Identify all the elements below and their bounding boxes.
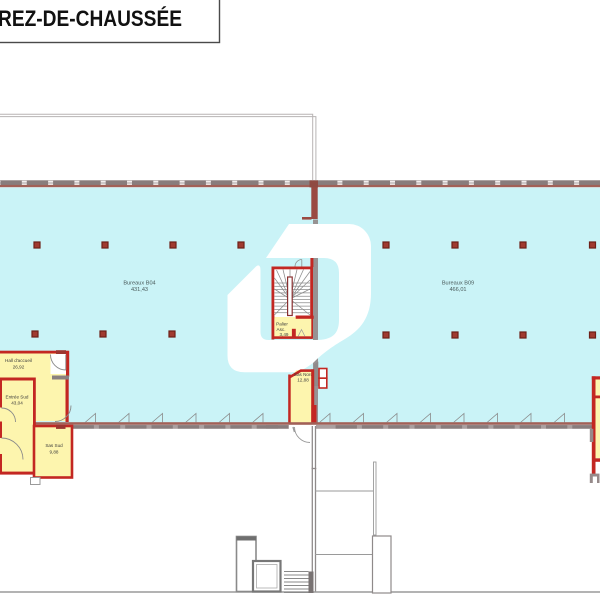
svg-text:26,92: 26,92 [13,365,25,370]
svg-text:Bureaux B09: Bureaux B09 [442,281,474,287]
svg-text:Sas Sud: Sas Sud [45,443,63,448]
svg-text:12,88: 12,88 [297,378,309,383]
svg-text:3,49: 3,49 [280,332,289,337]
svg-text:43,04: 43,04 [11,401,23,406]
svg-text:Bureaux B04: Bureaux B04 [123,281,155,287]
svg-text:Hall d'accueil: Hall d'accueil [5,358,32,363]
svg-text:431,43: 431,43 [131,287,148,293]
svg-text:Sas Nord: Sas Nord [294,372,314,377]
svg-text:Palier: Palier [276,322,288,327]
svg-text:Entrée Sud: Entrée Sud [6,395,29,400]
svg-text:466,01: 466,01 [449,287,466,293]
svg-text:9,88: 9,88 [50,450,59,455]
svg-text:REZ-DE-CHAUSSÉE: REZ-DE-CHAUSSÉE [0,6,182,31]
